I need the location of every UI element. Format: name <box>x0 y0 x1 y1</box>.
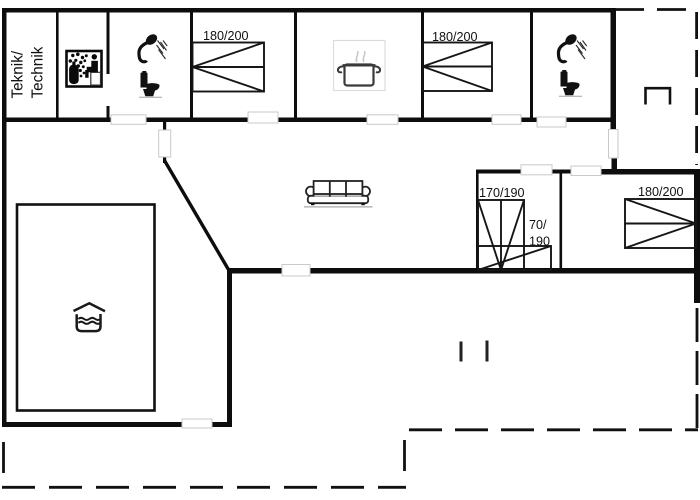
svg-text:Teknik/: Teknik/ <box>10 50 27 98</box>
svg-text:180/200: 180/200 <box>638 185 684 199</box>
svg-text:180/200: 180/200 <box>203 29 249 43</box>
svg-text:Technik: Technik <box>30 46 47 98</box>
svg-text:170/190: 170/190 <box>479 186 525 200</box>
svg-text:70/: 70/ <box>529 218 547 232</box>
